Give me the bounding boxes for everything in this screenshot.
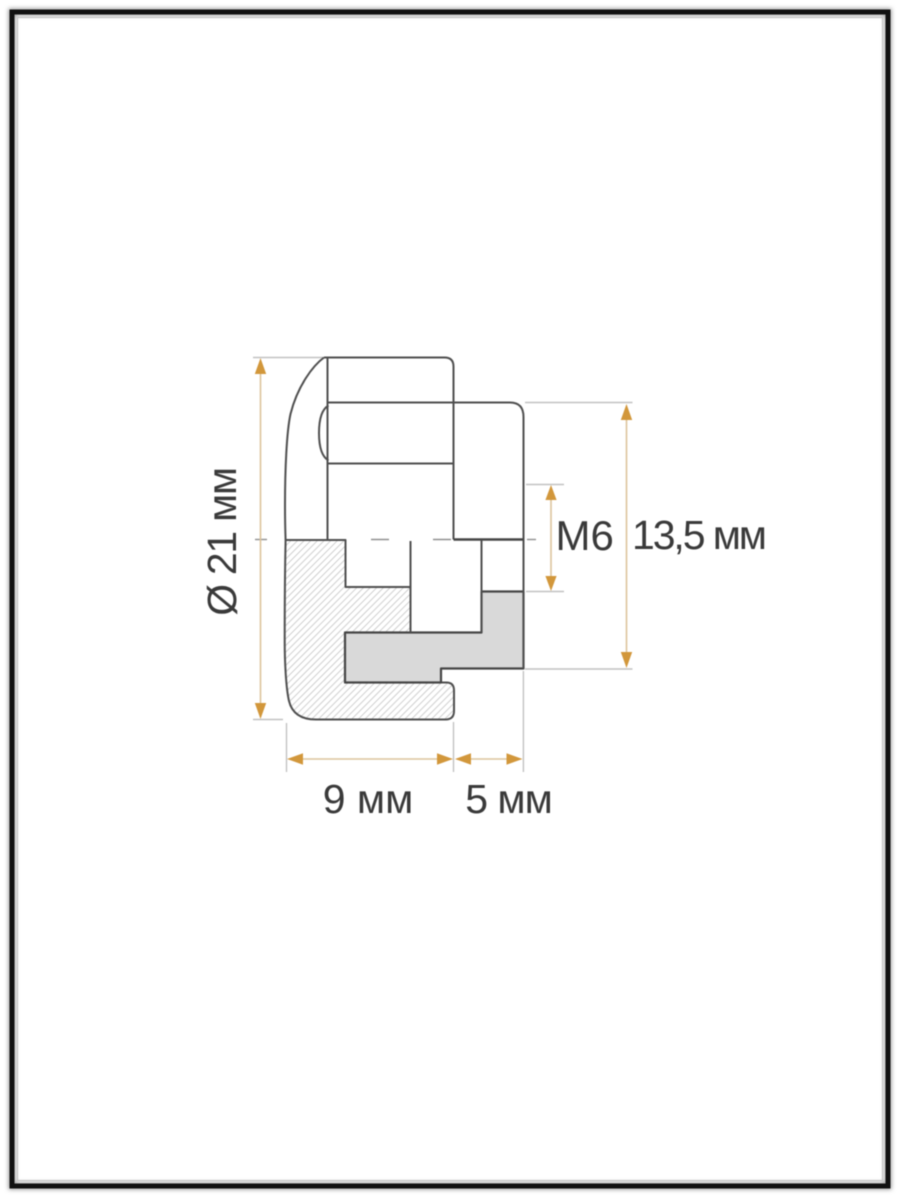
svg-text:5 мм: 5 мм bbox=[465, 776, 552, 822]
svg-text:13,5 мм: 13,5 мм bbox=[632, 512, 765, 558]
svg-text:M6: M6 bbox=[556, 512, 614, 559]
svg-text:Ø 21 мм: Ø 21 мм bbox=[199, 468, 245, 616]
svg-text:9 мм: 9 мм bbox=[323, 776, 414, 822]
